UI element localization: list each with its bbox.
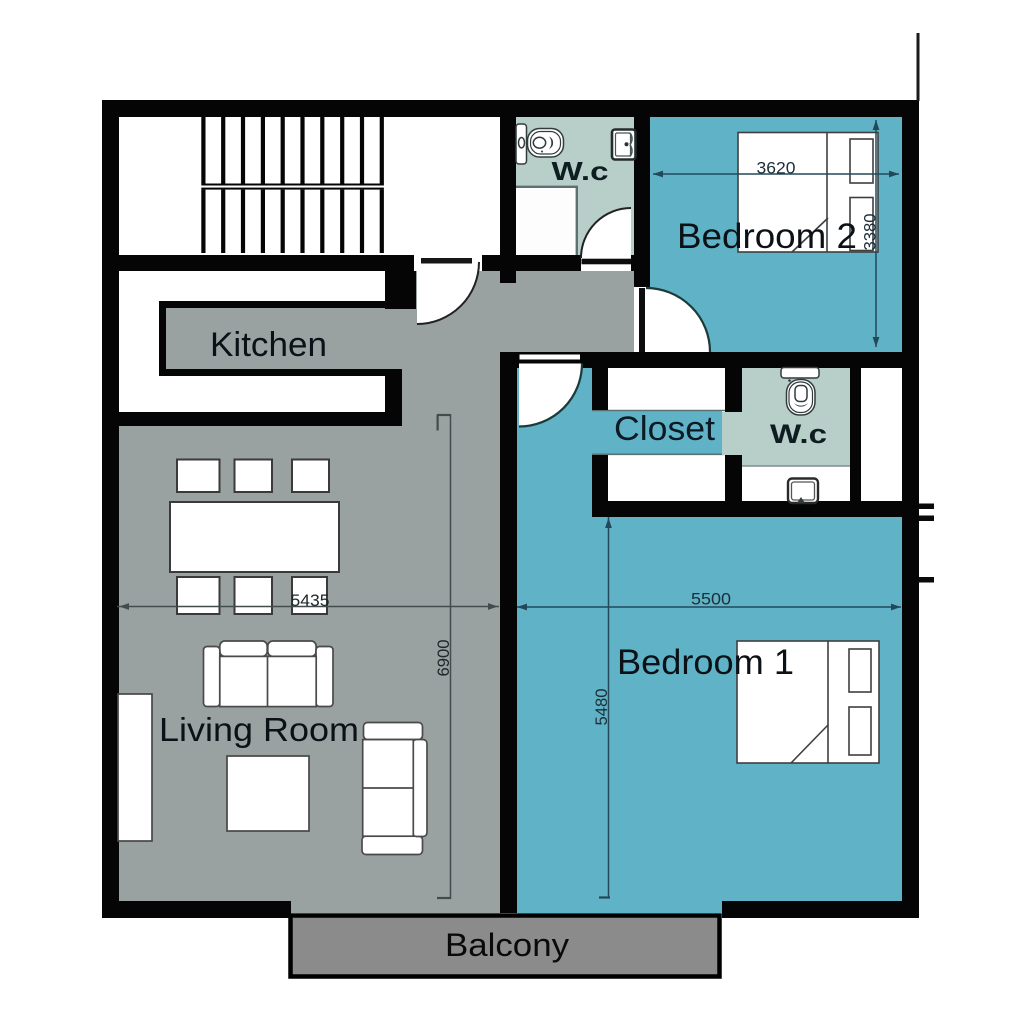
svg-text:5500: 5500 (691, 590, 731, 609)
svg-text:W.c: W.c (770, 419, 827, 449)
svg-text:3620: 3620 (757, 159, 796, 178)
svg-text:Kitchen: Kitchen (210, 326, 327, 364)
svg-text:Bedroom 1: Bedroom 1 (617, 643, 794, 682)
svg-text:3380: 3380 (861, 214, 880, 251)
svg-text:Bedroom 2: Bedroom 2 (677, 217, 857, 256)
svg-text:Living Room: Living Room (159, 711, 359, 748)
svg-text:Closet: Closet (614, 410, 716, 448)
svg-text:5480: 5480 (592, 689, 611, 726)
svg-text:5435: 5435 (291, 591, 330, 610)
svg-text:Balcony: Balcony (445, 927, 569, 963)
svg-text:6900: 6900 (434, 640, 453, 677)
svg-text:W.c: W.c (552, 156, 609, 186)
